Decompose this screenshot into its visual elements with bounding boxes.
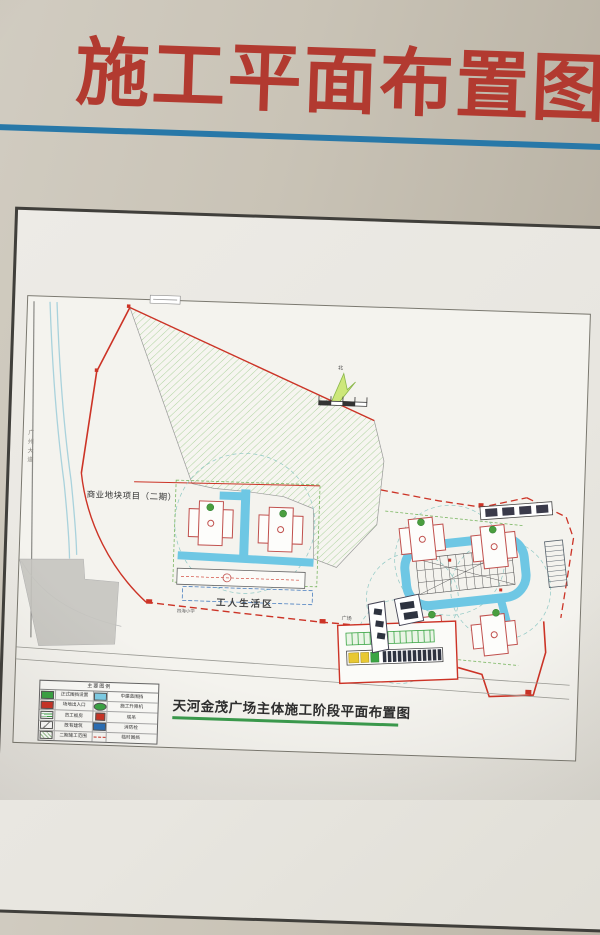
site-compound [338,621,458,683]
legend-table: 主要图例 正式围挡设置 中建蓝围挡 场地出入口 施工升降机 员工板房 塔吊 既有… [37,680,159,745]
legend-swatch-gate [41,701,54,709]
legend-swatch-crane [95,713,105,721]
legend-label: 消防栓 [107,723,155,734]
legend-swatch-temp-fence [93,736,105,737]
legend-label: 既有建筑 [55,721,93,731]
existing-building-mass [17,557,120,648]
legend-label: 员工板房 [55,711,93,721]
legend-label: 临时围挡 [106,733,154,744]
school-label: 四海小学 [177,607,196,615]
phase2-hatched-area [121,307,388,568]
scale-bar [319,396,367,407]
legend-swatch-existing [40,721,53,729]
site-plan-drawing: 广州大道 [0,0,600,923]
east-buildings [545,540,568,588]
phase2-label: 商业地块项目（二期） [86,489,176,502]
workers-area-label: 工人生活区 [216,597,274,611]
plaza-label: 广场 [342,615,352,622]
north-label: 北 [338,364,343,371]
legend-label: 场地出入口 [56,700,94,710]
legend-label: 施工升降机 [107,702,155,713]
legend-swatch-phase2 [40,731,53,739]
legend-swatch-hoist [94,702,107,710]
legend-swatch-blue-hoarding [94,692,107,700]
legend-label: 塔吊 [107,712,155,723]
shop-row [480,502,553,520]
apex-annotation [150,295,180,304]
photo-stage: 施工平面布置图 广州大道 [0,0,600,923]
legend-label: 二期施工范围 [54,731,92,741]
legend-swatch-dorm [40,711,53,719]
legend-label: 正式围挡设置 [56,690,94,700]
legend-swatch-hydrant [93,723,106,731]
legend-label: 中建蓝围挡 [108,692,156,703]
legend-swatch-formal-fence [41,690,54,698]
